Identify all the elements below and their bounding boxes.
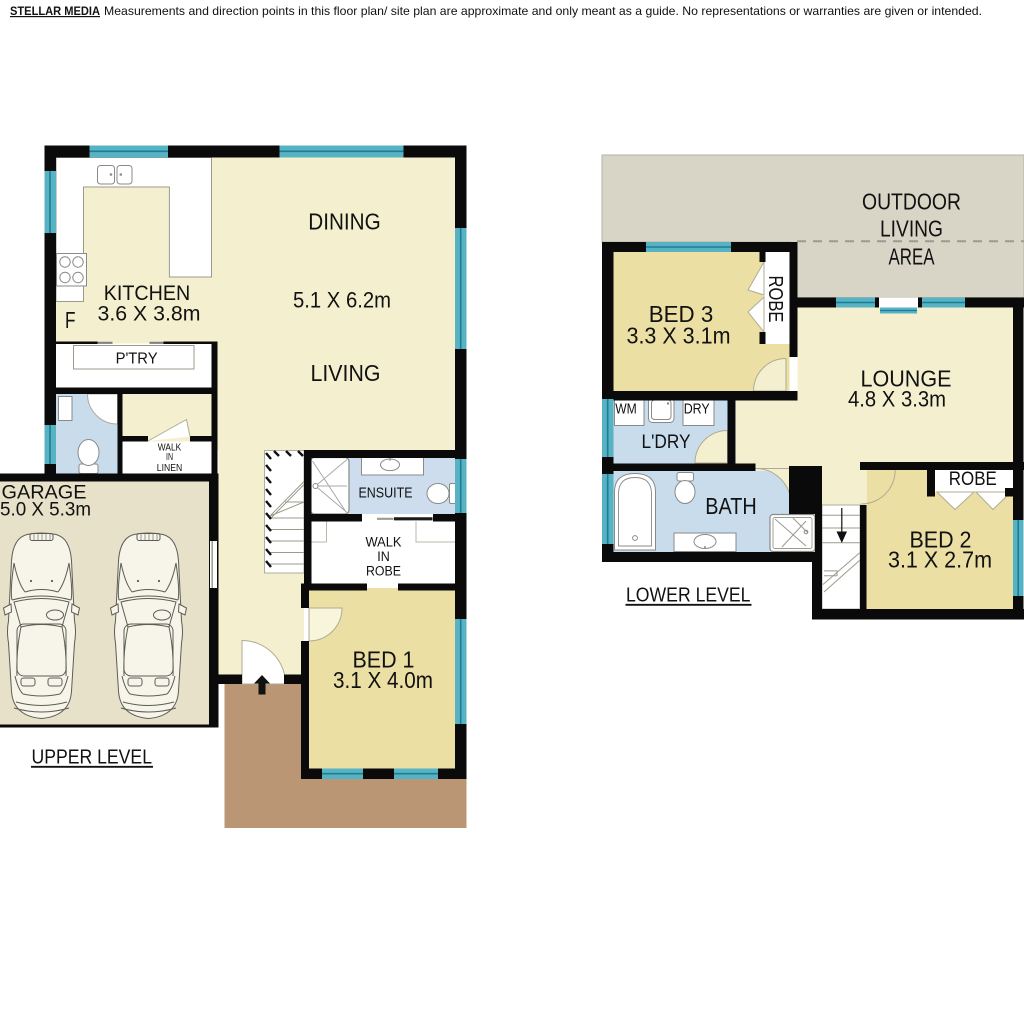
svg-text:4.8 X 3.3m: 4.8 X 3.3m: [848, 387, 946, 412]
svg-text:BATH: BATH: [705, 493, 757, 519]
svg-text:5.0 X 5.3m: 5.0 X 5.3m: [0, 499, 91, 521]
svg-text:LIVING: LIVING: [880, 215, 943, 241]
svg-text:IN: IN: [377, 549, 390, 564]
svg-text:LINEN: LINEN: [157, 462, 182, 474]
svg-text:3.6 X 3.8m: 3.6 X 3.8m: [98, 303, 201, 326]
svg-text:F: F: [65, 307, 76, 333]
svg-text:3.1 X 4.0m: 3.1 X 4.0m: [333, 667, 433, 693]
svg-text:ENSUITE: ENSUITE: [359, 486, 413, 502]
svg-text:AREA: AREA: [889, 244, 935, 270]
svg-text:3.3 X 3.1m: 3.3 X 3.1m: [627, 323, 731, 349]
svg-text:DRY: DRY: [684, 402, 710, 418]
svg-text:DINING: DINING: [308, 209, 381, 235]
svg-text:ROBE: ROBE: [764, 276, 786, 323]
svg-text:WALK: WALK: [366, 535, 402, 550]
svg-text:WM: WM: [615, 402, 637, 418]
svg-text:P'TRY: P'TRY: [116, 351, 158, 368]
svg-text:OUTDOOR: OUTDOOR: [862, 188, 961, 214]
svg-text:STELLAR MEDIA: STELLAR MEDIA: [10, 4, 100, 18]
svg-text:LOWER LEVEL: LOWER LEVEL: [626, 584, 751, 607]
svg-text:ROBE: ROBE: [949, 469, 997, 490]
svg-text:Measurements and direction poi: Measurements and direction points in thi…: [104, 4, 982, 18]
svg-text:LIVING: LIVING: [311, 360, 381, 386]
svg-text:UPPER LEVEL: UPPER LEVEL: [32, 746, 153, 769]
svg-text:L'DRY: L'DRY: [642, 431, 691, 453]
svg-text:3.1 X 2.7m: 3.1 X 2.7m: [888, 547, 992, 573]
svg-text:ROBE: ROBE: [366, 564, 401, 579]
svg-text:5.1 X 6.2m: 5.1 X 6.2m: [293, 288, 391, 313]
